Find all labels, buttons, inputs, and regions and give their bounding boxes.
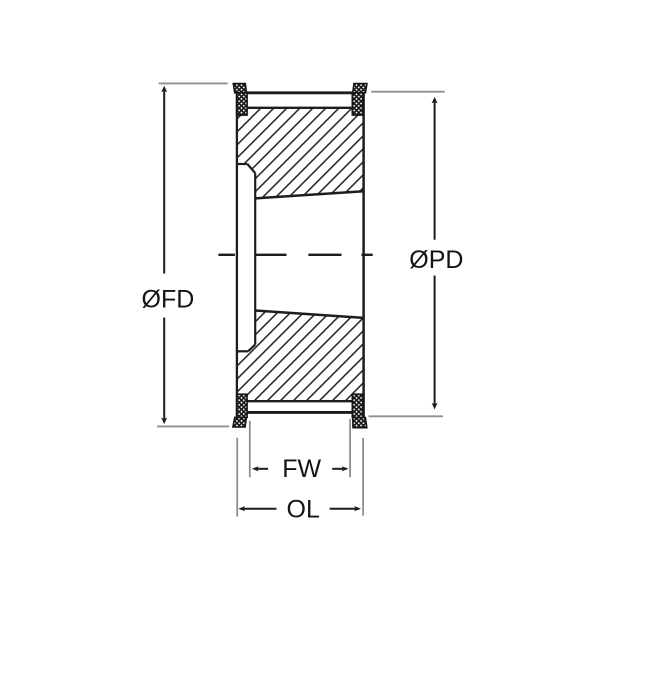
svg-text:ØFD: ØFD	[142, 285, 195, 313]
svg-text:OL: OL	[287, 496, 320, 524]
svg-text:ØPD: ØPD	[409, 246, 463, 274]
svg-text:FW: FW	[282, 455, 321, 483]
